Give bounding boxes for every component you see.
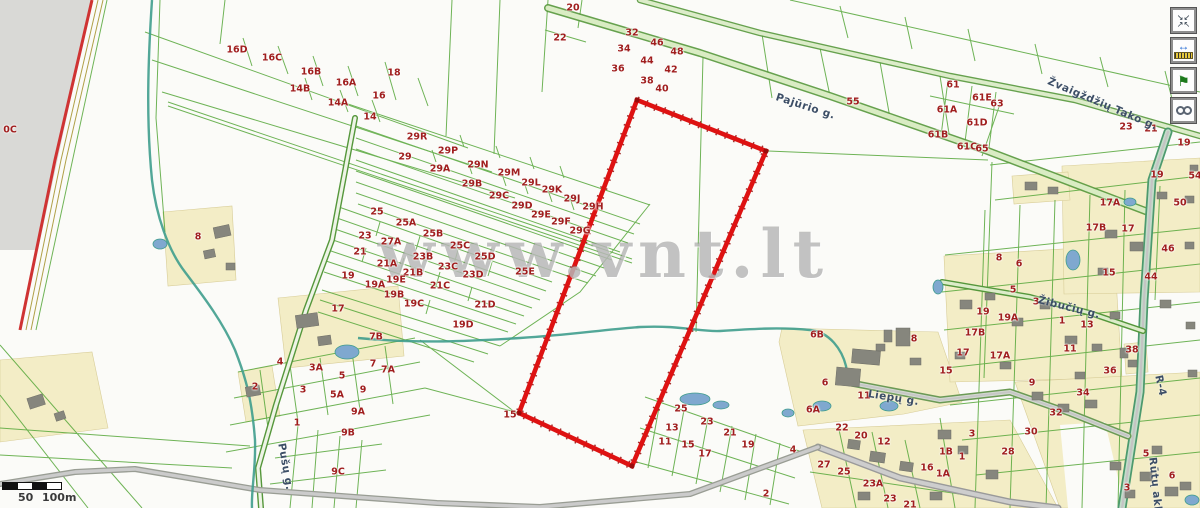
- link-icon: [1176, 106, 1192, 116]
- parcel-number-label: 5: [339, 371, 346, 381]
- parcel-number-label: 25A: [396, 218, 417, 228]
- parcel-number-label: 29H: [582, 202, 603, 212]
- parcel-number-label: 63: [990, 99, 1003, 109]
- parcel-number-label: 15: [939, 366, 952, 376]
- parcel-number-label: 23: [883, 494, 896, 504]
- parcel-number-label: 3: [1124, 483, 1131, 493]
- parcel-number-label: 14: [363, 112, 376, 122]
- parcel-number-label: 2: [763, 489, 770, 499]
- parcel-number-label: 21: [723, 428, 736, 438]
- parcel-number-label: 61A: [937, 105, 958, 115]
- parcel-number-label: 17: [956, 348, 969, 358]
- parcel-number-label: 27: [817, 460, 830, 470]
- parcel-number-label: 6B: [810, 330, 824, 340]
- parcel-number-label: 42: [664, 65, 677, 75]
- parcel-number-label: 32: [625, 28, 638, 38]
- parcel-number-label: 17A: [990, 351, 1011, 361]
- parcel-number-label: 13: [1080, 320, 1093, 330]
- parcel-number-label: 65: [975, 144, 988, 154]
- parcel-number-label: 21D: [474, 300, 495, 310]
- parcel-number-label: 29R: [407, 132, 428, 142]
- parcel-number-label: 23B: [413, 252, 433, 262]
- parcel-number-label: 21: [903, 500, 916, 508]
- parcel-number-label: 1: [294, 418, 301, 428]
- parcel-number-label: 7A: [381, 365, 395, 375]
- scale-bar-mid-label: 50: [18, 491, 33, 504]
- parcel-number-label: 25: [370, 207, 383, 217]
- parcel-number-label: 29J: [564, 194, 581, 204]
- parcel-number-label: 18: [387, 68, 400, 78]
- road-bottom: [0, 447, 818, 507]
- parcel-number-label: 54: [1188, 171, 1200, 181]
- parcel-number-label: 30: [1024, 427, 1037, 437]
- parcel-number-label: 1: [1059, 316, 1066, 326]
- parcel-number-label: 36: [1103, 366, 1116, 376]
- parcel-number-label: 21C: [430, 281, 450, 291]
- parcel-number-label: 23C: [438, 262, 458, 272]
- parcel-number-label: 16A: [336, 78, 357, 88]
- parcel-number-label: 17: [698, 449, 711, 459]
- road-pajurio: [548, 8, 1148, 212]
- parcel-number-label: 50: [1173, 198, 1186, 208]
- parcel-number-label: 3: [300, 385, 307, 395]
- parcel-number-label: 17B: [965, 328, 985, 338]
- parcel-number-label: 23: [358, 231, 371, 241]
- parcel-number-label: 25C: [450, 241, 470, 251]
- parcel-number-label: 29N: [467, 160, 488, 170]
- parcel-number-label: 19: [1150, 170, 1163, 180]
- parcel-number-label: 29P: [438, 146, 458, 156]
- scale-bar: 50 100m: [2, 482, 92, 502]
- scale-bar-end-label: 100m: [42, 491, 76, 504]
- parcel-number-label: 6A: [806, 405, 820, 415]
- parcel-number-label: 21A: [377, 259, 398, 269]
- parcel-number-label: 34: [617, 44, 630, 54]
- parcel-number-label: 19A: [998, 313, 1019, 323]
- parcel-number-label: 5A: [330, 390, 344, 400]
- parcel-number-label: 16: [372, 91, 385, 101]
- parcel-number-label: 40: [655, 84, 668, 94]
- parcel-number-label: 4: [277, 357, 284, 367]
- parcel-number-label: 20: [854, 431, 867, 441]
- parcel-number-label: 20: [566, 3, 579, 13]
- parcel-number-label: 15: [1102, 268, 1115, 278]
- parcel-number-label: 32: [1049, 408, 1062, 418]
- parcel-number-label: 7: [370, 359, 377, 369]
- parcel-number-label: 17: [331, 304, 344, 314]
- parcel-number-label: 8: [996, 253, 1003, 263]
- parcel-number-label: 5: [1010, 285, 1017, 295]
- parcel-number-label: 0C: [3, 125, 17, 135]
- parcel-number-label: 19E: [386, 275, 406, 285]
- parcel-number-label: 14A: [328, 98, 349, 108]
- parcel-number-label: 25: [837, 467, 850, 477]
- parcel-number-label: 15: [681, 440, 694, 450]
- parcel-number-label: 44: [640, 56, 653, 66]
- parcel-number-label: 29G: [569, 226, 590, 236]
- parcel-number-label: 16: [920, 463, 933, 473]
- parcel-number-label: 29F: [551, 217, 571, 227]
- parcel-number-label: 25: [674, 404, 687, 414]
- parcel-number-label: 14B: [290, 84, 310, 94]
- parcel-number-label: 6: [1169, 471, 1176, 481]
- parcel-number-label: 38: [640, 76, 653, 86]
- parcel-number-label: 29B: [462, 179, 482, 189]
- scale-bar-segments: [2, 482, 62, 490]
- parcel-number-label: 6: [1016, 259, 1023, 269]
- parcel-number-label: 19: [341, 271, 354, 281]
- parcel-number-label: 1A: [936, 469, 950, 479]
- parcel-number-label: 16B: [301, 67, 321, 77]
- parcel-number-label: 29M: [498, 168, 521, 178]
- parcel-number-label: 34: [1076, 388, 1089, 398]
- parcel-number-label: 22: [553, 33, 566, 43]
- parcel-number-label: 7B: [369, 332, 383, 342]
- parcel-number-label: 9: [360, 385, 367, 395]
- parcel-number-label: 46: [1161, 244, 1174, 254]
- parcel-number-label: 38: [1125, 345, 1138, 355]
- parcel-number-label: 25E: [515, 267, 535, 277]
- parcel-number-label: 29L: [521, 178, 540, 188]
- parcel-number-label: 48: [670, 47, 683, 57]
- parcel-number-label: 23A: [863, 479, 884, 489]
- parcel-number-label: 1B: [939, 447, 953, 457]
- parcel-number-label: 19: [1177, 138, 1190, 148]
- parcel-number-label: 16C: [262, 53, 282, 63]
- parcel-number-label: 2: [252, 382, 259, 392]
- parcel-number-label: 3: [969, 429, 976, 439]
- parcel-number-label: 61C: [957, 142, 977, 152]
- parcel-number-label: 16D: [226, 45, 247, 55]
- parcel-number-label: 9: [1029, 378, 1036, 388]
- parcel-number-label: 9A: [351, 407, 365, 417]
- parcel-number-label: 17B: [1086, 223, 1106, 233]
- parcel-number-label: 4: [790, 445, 797, 455]
- parcel-number-label: 9C: [331, 467, 345, 477]
- parcel-number-label: 21: [353, 247, 366, 257]
- parcel-number-label: 19: [976, 307, 989, 317]
- parcel-number-label: 19A: [365, 280, 386, 290]
- parcel-number-label: 12: [877, 437, 890, 447]
- parcel-number-label: 8: [911, 334, 918, 344]
- parcel-number-label: 23: [700, 417, 713, 427]
- parcel-number-label: 61E: [972, 93, 992, 103]
- parcel-number-label: 19D: [452, 320, 473, 330]
- parcel-number-label: 29K: [542, 185, 563, 195]
- parcel-number-label: 28: [1001, 447, 1014, 457]
- parcel-number-label: 46: [650, 38, 663, 48]
- parcel-number-label: 36: [611, 64, 624, 74]
- parcel-number-label: 44: [1144, 272, 1157, 282]
- zoom-extent-button[interactable]: ↘↙↗↖: [1171, 8, 1196, 33]
- parcel-number-label: 22: [835, 423, 848, 433]
- map-canvas[interactable]: www.vnt.lt 0C202232344648364442384016D16…: [0, 0, 1200, 508]
- flag-button[interactable]: ⚑: [1171, 68, 1196, 93]
- parcel-number-label: 11: [1063, 344, 1076, 354]
- parcel-number-label: 29E: [531, 210, 551, 220]
- parcel-number-label: 11: [658, 437, 671, 447]
- parcel-number-label: 29C: [489, 191, 509, 201]
- parcel-number-label: 19C: [404, 299, 424, 309]
- parcel-number-label: 25D: [474, 252, 495, 262]
- parcel-number-label: 27A: [381, 237, 402, 247]
- parcel-number-label: 15: [503, 410, 516, 420]
- parcel-number-label: 9B: [341, 428, 355, 438]
- parcel-number-label: 8: [195, 232, 202, 242]
- parcel-number-label: 29: [398, 152, 411, 162]
- link-button[interactable]: [1171, 98, 1196, 123]
- parcel-number-label: 19: [741, 440, 754, 450]
- parcel-number-label: 23: [1119, 122, 1132, 132]
- parcel-number-label: 23D: [462, 270, 483, 280]
- flag-icon: ⚑: [1177, 74, 1190, 88]
- parcel-number-label: 1: [959, 452, 966, 462]
- parcel-number-label: 61B: [928, 130, 948, 140]
- parcel-number-label: 29D: [511, 201, 532, 211]
- measure-icon: ↔: [1178, 42, 1190, 51]
- parcel-number-label: 29A: [430, 164, 451, 174]
- parcel-number-label: 61D: [966, 118, 987, 128]
- parcel-number-label: 13: [665, 423, 678, 433]
- parcel-number-label: 6: [822, 378, 829, 388]
- parcel-number-label: 25B: [423, 229, 443, 239]
- parcel-number-label: 3A: [309, 363, 323, 373]
- measure-button[interactable]: ↔: [1171, 38, 1196, 63]
- arrows-inward-icon: ↘↙↗↖: [1177, 14, 1190, 28]
- parcel-number-label: 17: [1121, 224, 1134, 234]
- parcel-number-label: 55: [846, 97, 859, 107]
- parcel-number-label: 19B: [384, 290, 404, 300]
- parcel-number-label: 61: [946, 80, 959, 90]
- parcel-number-label: 17A: [1100, 198, 1121, 208]
